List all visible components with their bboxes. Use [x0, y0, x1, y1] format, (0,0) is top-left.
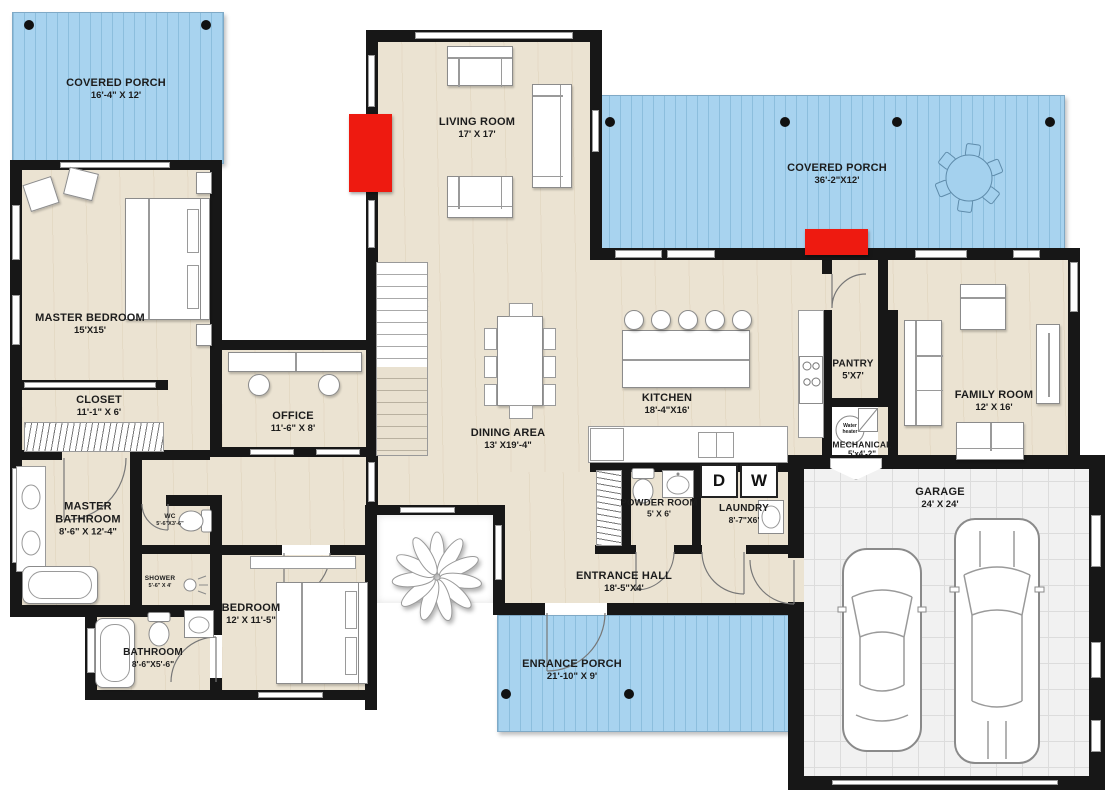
porch-column	[501, 689, 511, 699]
toilet-icon	[146, 612, 172, 648]
dining-chair	[543, 356, 556, 378]
label-garage: GARAGE 24' X 24'	[915, 486, 964, 510]
tv-cabinet	[1036, 324, 1060, 404]
label-office: OFFICE 11'-6" X 8'	[271, 410, 315, 434]
bar-stool	[732, 310, 752, 330]
dresser	[250, 556, 356, 569]
label-kitchen: KITCHEN 18'-4"X16'	[642, 392, 692, 416]
porch-column	[1045, 117, 1055, 127]
dryer: D	[700, 464, 738, 498]
porch-column	[201, 20, 211, 30]
porch-column	[624, 689, 634, 699]
porch-column	[24, 20, 34, 30]
refrigerator	[590, 428, 624, 461]
label-bedroom: BEDROOM 12' X 11'-5"	[222, 602, 281, 626]
label-entrance-porch: ENRANCE PORCH 21'-10" X 9'	[522, 658, 622, 682]
dining-chair	[509, 405, 533, 419]
label-family-room: FAMILY ROOM 12' X 16'	[955, 389, 1034, 413]
label-master-bathroom: MASTER BATHROOM 8'-6" X 12'-4"	[42, 500, 134, 537]
car-sedan	[838, 545, 926, 755]
office-chair	[318, 374, 340, 396]
vanity-sink-icon	[20, 482, 42, 512]
label-living-room: LIVING ROOM 17' X 17'	[439, 116, 515, 140]
label-entrance-hall: ENTRANCE HALL 18'-5"X4'	[576, 570, 672, 594]
dining-chair	[484, 384, 497, 406]
dining-chair	[543, 384, 556, 406]
dining-chair	[484, 328, 497, 350]
shower-head-icon	[180, 572, 210, 598]
plant-icon	[392, 532, 482, 622]
label-closet: CLOSET 11'-1" X 6'	[76, 394, 122, 418]
bar-stool	[651, 310, 671, 330]
nightstand	[196, 324, 212, 346]
kitchen-sink	[698, 432, 734, 458]
label-pantry: PANTRY 5'X7'	[832, 359, 873, 382]
armchair	[960, 284, 1006, 330]
porch-column	[780, 117, 790, 127]
loveseat	[956, 422, 1024, 460]
office-desk	[228, 352, 362, 372]
sink-icon	[662, 470, 694, 498]
bar-stool	[678, 310, 698, 330]
office-chair	[248, 374, 270, 396]
label-bathroom: BATHROOM 8'-6"X5'-6"	[123, 647, 183, 669]
sofa	[447, 176, 513, 218]
label-wc: WC 5'-6"X3'-6"	[156, 513, 183, 527]
porch-column	[892, 117, 902, 127]
washer: W	[740, 464, 778, 498]
label-mechanical: MECHANICAL 5'x4'-2"	[832, 439, 891, 458]
car-suv	[950, 515, 1044, 767]
bed	[276, 582, 368, 684]
kitchen-island	[622, 330, 750, 388]
label-laundry: LAUNDRY 8'-7"X6'	[719, 503, 769, 525]
label-master-bedroom: MASTER BEDROOM 15'X15'	[35, 312, 145, 336]
bar-stool	[705, 310, 725, 330]
stove-icon	[799, 356, 823, 404]
sofa	[447, 46, 513, 86]
nightstand	[196, 172, 212, 194]
floor-plan: Water heater D W	[0, 0, 1117, 800]
dining-chair	[509, 303, 533, 317]
staircase	[376, 262, 428, 456]
label-dining-area: DINING AREA 13' X19'-4"	[471, 427, 546, 451]
dining-table	[497, 316, 543, 406]
bar-stool	[624, 310, 644, 330]
bathtub	[22, 566, 98, 604]
mechanical-unit-icon	[858, 408, 878, 432]
sofa	[904, 320, 942, 426]
master-bed	[125, 198, 210, 320]
entry-closet	[596, 470, 622, 546]
dining-chair	[484, 356, 497, 378]
label-shower: SHOWER 5'-6" X 4'	[145, 575, 175, 589]
vanity-sink-icon	[20, 528, 42, 558]
dining-chair	[543, 328, 556, 350]
porch-column	[605, 117, 615, 127]
sink-icon	[184, 610, 214, 638]
sofa	[532, 84, 572, 188]
porch-table	[934, 144, 1004, 212]
closet-hanging-rod	[24, 422, 164, 452]
label-powder-room: POWDER ROOM 5' X 6'	[620, 497, 697, 518]
label-covered-porch-left: COVERED PORCH 16'-4" X 12'	[66, 77, 166, 101]
label-covered-porch-right: COVERED PORCH 36'-2"X12'	[787, 162, 887, 186]
